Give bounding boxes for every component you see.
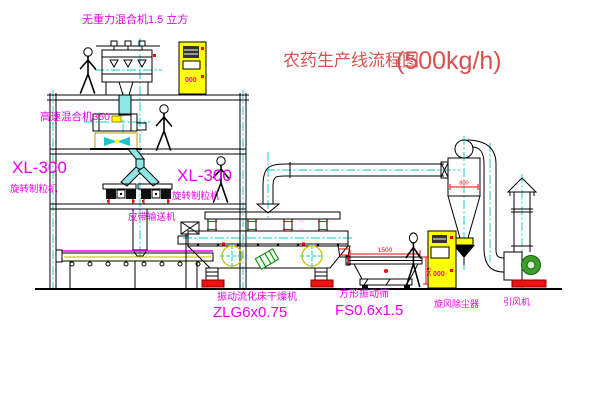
label-fan: 引风机 [503,296,530,307]
dryer-crosshair-right [300,245,324,267]
dryer-foot-right [311,268,333,287]
vibration-motor [255,249,278,269]
worker-figure-ground [406,233,420,286]
label-belt-conveyor: 皮带输送机 [128,211,176,223]
cabinet2-text: 000 [433,271,445,278]
dryer-spouts [207,219,328,231]
granulator-left [103,184,137,204]
control-cabinet-2: 000 [428,231,456,288]
belt-conveyor [56,250,213,288]
worker-figure-floor2 [157,105,172,150]
cyclone-outlet-pipe [466,140,504,272]
feed-pipe [119,95,131,115]
label-granulator-left-name: 旋转制粒机 [10,183,58,195]
dryer-foot-left [202,268,224,287]
fan-base [512,280,546,287]
cabinet1-grille [183,46,199,58]
cad-drawing: 000 [0,0,600,403]
y-splitter-pipe [121,149,159,186]
label-granulator-right-name: 旋转制粒机 [172,190,220,202]
label-cyclone: 旋风除尘器 [434,298,479,309]
label-screen-model: FS0.6x1.5 [335,302,403,319]
worker-figure-top [81,48,96,93]
cabinet1-display [183,61,200,69]
gravity-mixer [96,41,160,95]
screen-height-dim: 345 [427,267,433,276]
screen-length-dim: 1500 [378,247,393,254]
rotary-valve [455,238,473,245]
cabinet2-display [431,247,449,258]
granulator-right [138,184,172,204]
label-dryer-name: 振动流化床干燥机 [217,290,297,303]
cabinet1-text: 000 [185,77,197,84]
label-granulator-right-model: XL-300 [177,166,232,185]
vibrating-screen: 1500 345 [346,247,433,289]
cyclone-dim-label: 800 [459,181,468,187]
label-gravity-mixer: 无重力混合机1.5 立方 [82,12,188,26]
label-screen-name: 方形振动筛 [339,287,389,300]
label-high-speed-mixer: 高速混合机350 [40,110,110,123]
control-cabinet-1: 000 [179,42,206,94]
label-dryer-model: ZLG6x0.75 [213,304,287,321]
label-granulator-left-model: XL-300 [12,158,67,177]
induced-draft-fan [504,252,546,287]
fluid-bed-dryer [188,212,350,287]
flow-diagram-canvas: 000 [0,0,600,403]
diagram-title-capacity: (500kg/h) [396,47,502,75]
